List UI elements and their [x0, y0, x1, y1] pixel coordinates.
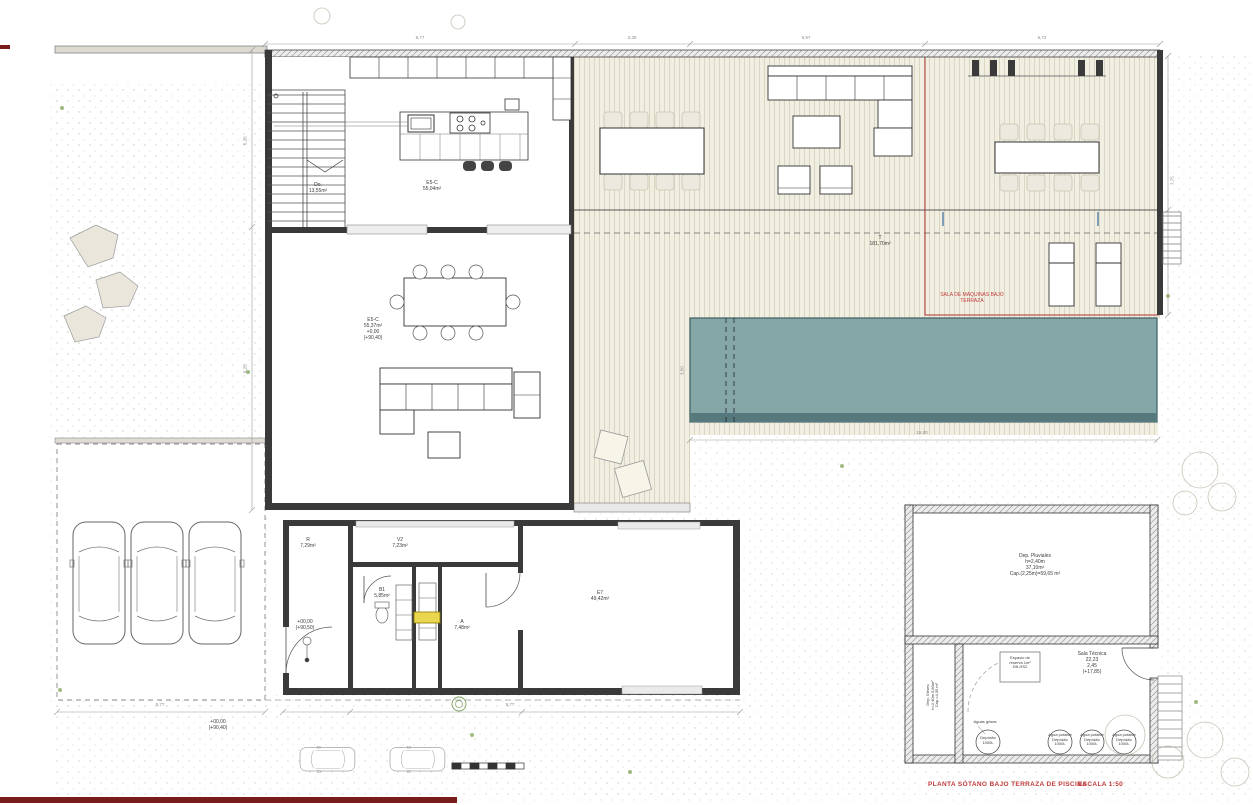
reserve-space-box — [1000, 652, 1040, 682]
red-reference-line-bottom — [0, 797, 457, 803]
house-south-wall — [265, 503, 574, 510]
vanity — [396, 585, 412, 640]
red-reference-tick-top — [0, 45, 10, 49]
grey-water-tank — [976, 730, 1000, 754]
deck-sill — [574, 503, 690, 512]
door-sill — [347, 225, 427, 234]
outdoor-table-1 — [600, 128, 704, 174]
toilet — [376, 607, 388, 623]
car — [186, 522, 244, 644]
terrace-side-stair — [1163, 212, 1181, 264]
outdoor-table-2 — [995, 142, 1099, 173]
potable-water-tank — [1080, 730, 1104, 754]
carport — [57, 444, 265, 700]
window-sill — [356, 521, 514, 527]
kitchen-tall-unit — [553, 57, 571, 120]
east-wall — [1157, 50, 1163, 315]
pool-overflow-edge — [691, 413, 1156, 421]
outdoor-armchair — [820, 166, 852, 194]
scale-bar — [452, 763, 524, 769]
pool-water — [690, 318, 1157, 422]
armchair-indoor — [428, 432, 460, 458]
drawing-title: PLANTA SÓTANO BAJO TERRAZA DE PISCINA — [928, 781, 1087, 788]
potable-water-tank — [1112, 730, 1136, 754]
house-east-wall — [569, 57, 574, 505]
drawing-scale: ESCALA 1:50 — [1078, 781, 1123, 788]
kitchen-stools — [463, 161, 512, 171]
car — [128, 522, 186, 644]
floor-plan-drawing — [0, 0, 1253, 805]
north-wall — [265, 50, 1160, 57]
door-sill — [487, 225, 571, 234]
boiler-highlight — [414, 612, 440, 623]
equipment-shaft — [419, 583, 436, 640]
door-sill — [622, 686, 702, 694]
floor-plan-canvas: Do. 13,55m²E5-C 55,04m²E5-C 55,37m² +0,0… — [0, 0, 1253, 805]
service-wing — [283, 520, 740, 695]
dining-table-indoor — [404, 278, 506, 326]
door-sill — [618, 522, 700, 529]
site-wall-top — [55, 46, 267, 53]
swimming-pool — [690, 318, 1157, 422]
site-wall-carport — [55, 438, 265, 443]
potable-water-tank — [1048, 730, 1072, 754]
mech-symbol — [303, 637, 311, 645]
outdoor-armchair — [778, 166, 810, 194]
car — [70, 522, 128, 644]
coffee-table — [793, 116, 840, 148]
house-west-wall — [265, 50, 272, 510]
car — [390, 746, 445, 772]
car — [300, 746, 355, 772]
kitchen-hob — [450, 113, 490, 133]
basement-detail-plan — [905, 505, 1182, 763]
kitchen-appliance — [505, 99, 519, 110]
